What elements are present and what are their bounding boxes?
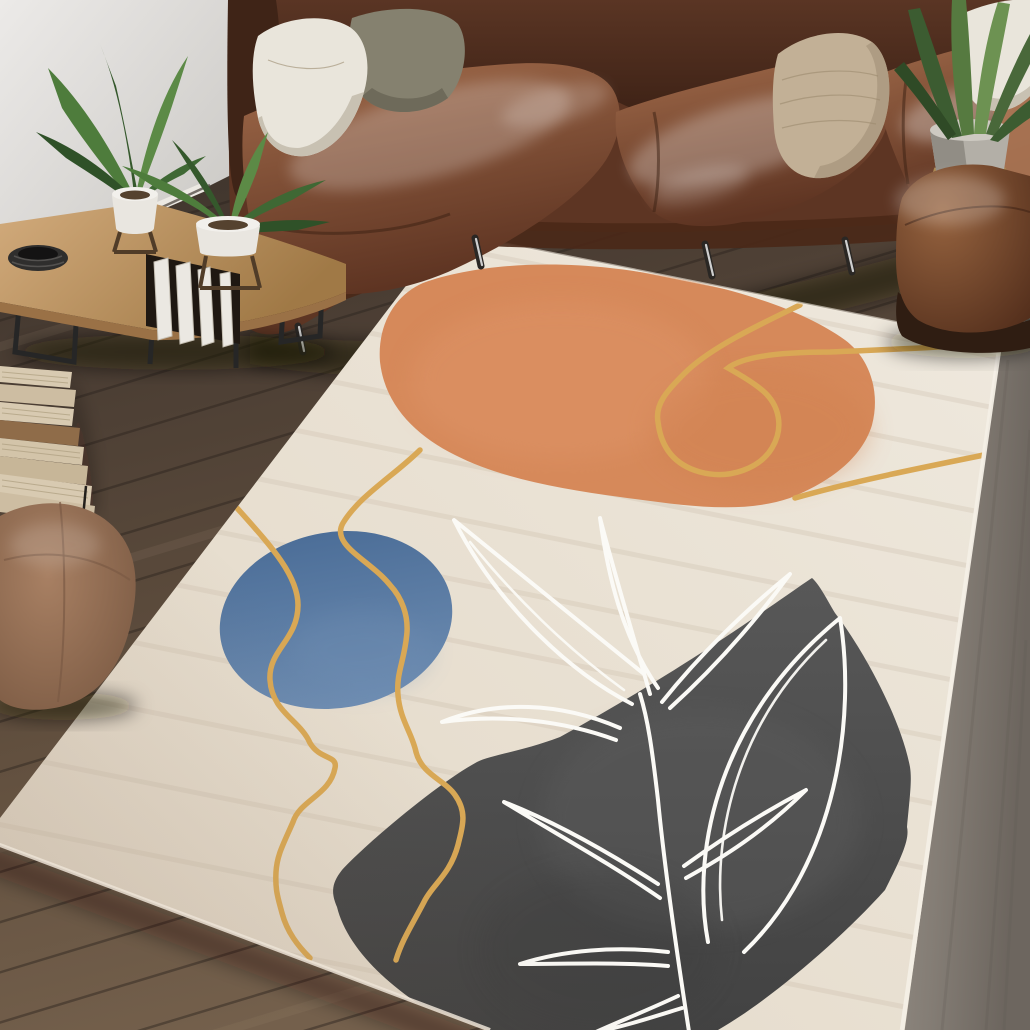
living-room-rug-photo — [0, 0, 1030, 1030]
decorative-bowl — [8, 245, 68, 271]
scene-canvas — [0, 0, 1030, 1030]
leather-pouf-right — [885, 164, 1030, 358]
